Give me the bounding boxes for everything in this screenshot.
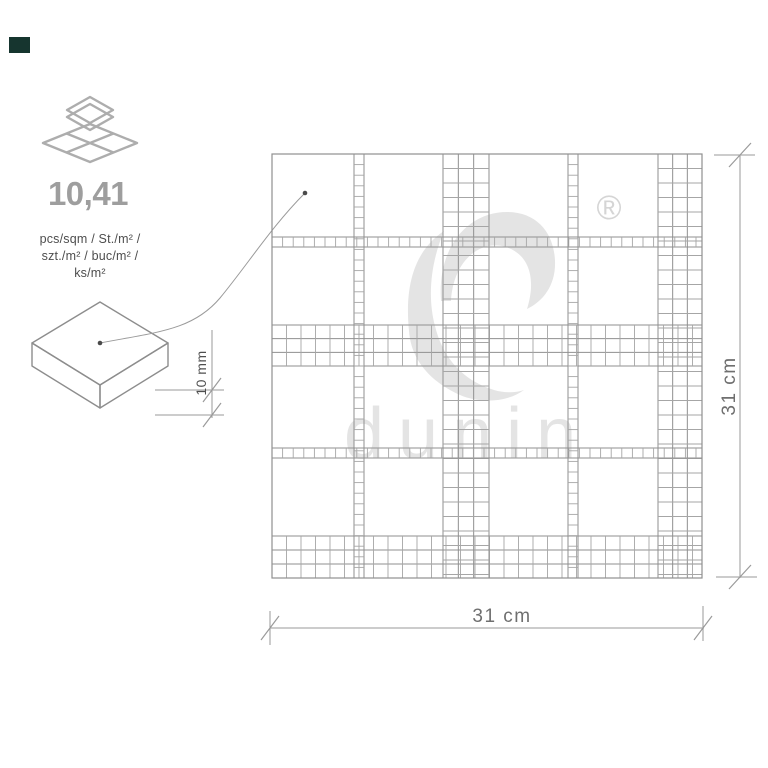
units-line-3: ks/m² [74,266,106,280]
units-line-2: szt./m² / buc/m² / [42,249,139,263]
leader-dot-slab [98,341,103,346]
registered-mark: ® [596,189,621,227]
page-background [0,0,768,768]
product-spec-sheet: 10,41 pcs/sqm / St./m² / szt./m² / buc/m… [0,0,768,768]
units-line-1: pcs/sqm / St./m² / [40,232,141,246]
leader-dot-grid [303,191,308,196]
height-dim-label: 31 cm [719,356,740,415]
brand-watermark-text: dunin [344,394,590,474]
coverage-value: 10,41 [48,175,128,212]
thickness-label: 10 mm [193,350,209,395]
width-dim-label: 31 cm [472,606,531,627]
brand-color-swatch [9,37,30,53]
